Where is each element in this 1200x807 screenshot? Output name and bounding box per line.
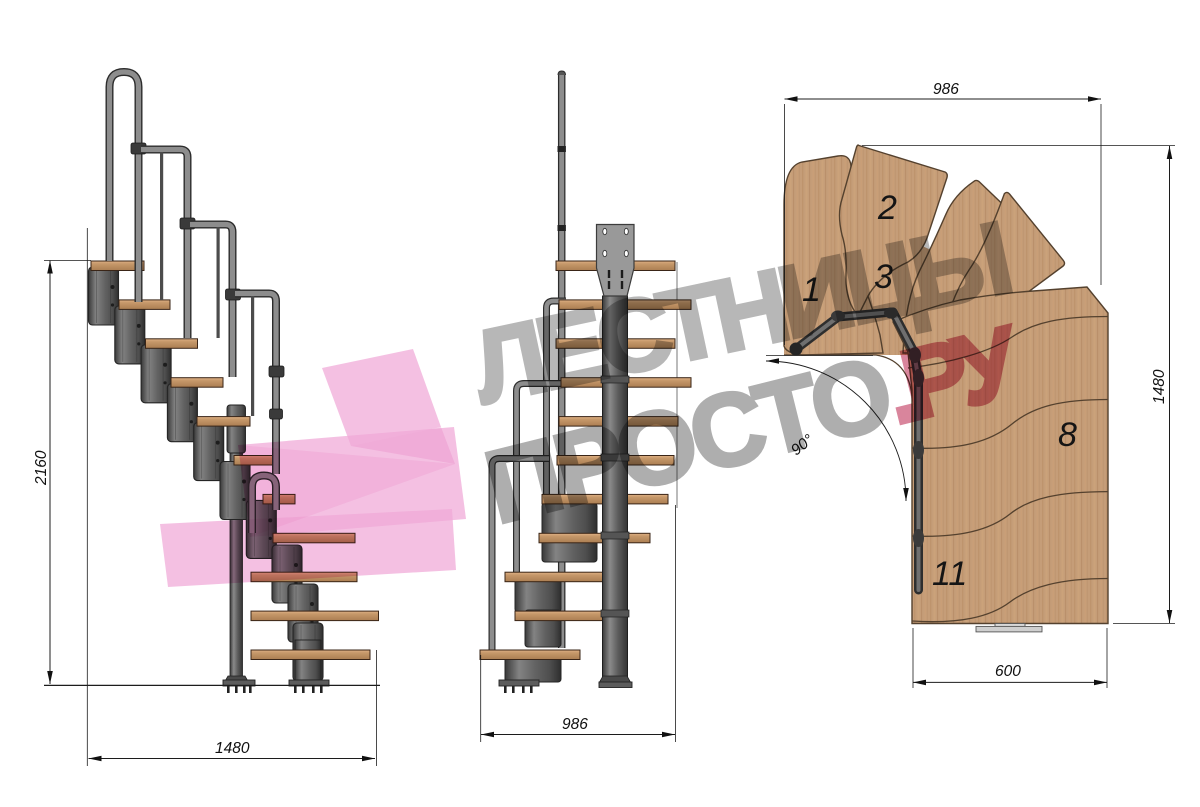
- svg-text:11: 11: [932, 555, 967, 593]
- svg-text:2160: 2160: [33, 450, 50, 486]
- svg-text:986: 986: [562, 716, 588, 733]
- svg-text:1480: 1480: [1151, 369, 1168, 404]
- svg-text:986: 986: [933, 81, 959, 98]
- svg-text:1480: 1480: [215, 740, 250, 757]
- svg-text:600: 600: [995, 663, 1021, 680]
- svg-text:8: 8: [1058, 416, 1077, 454]
